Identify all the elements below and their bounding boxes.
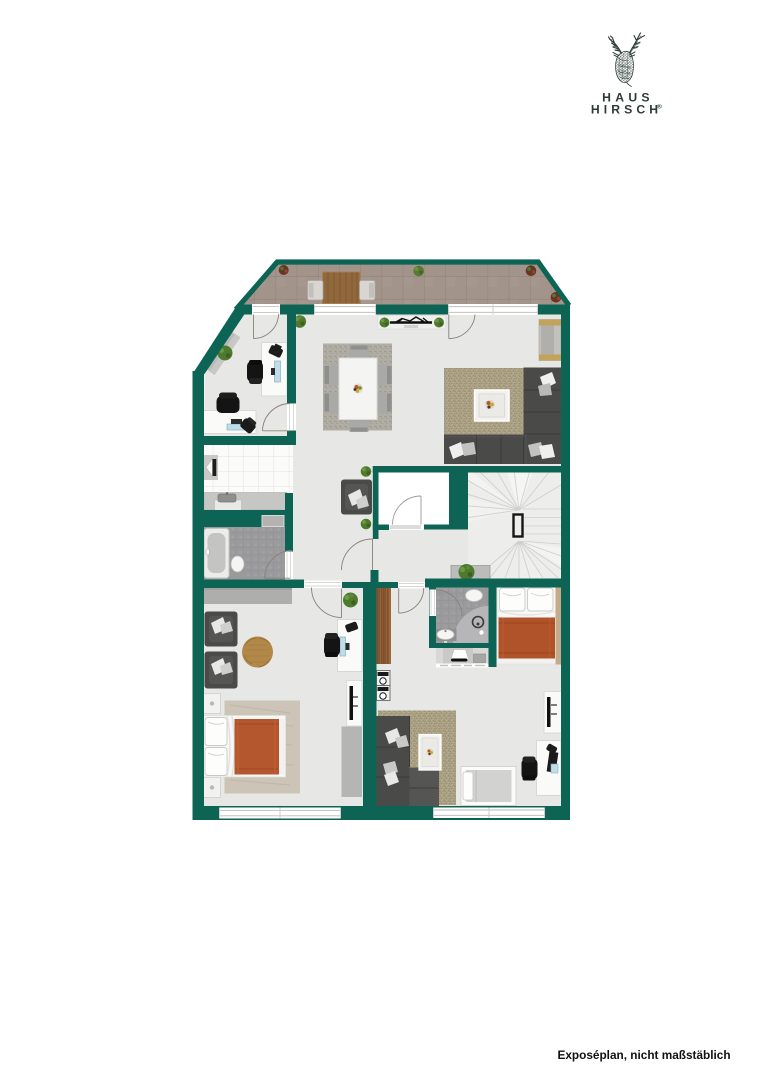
svg-text:Exposéplan, nicht maßstäblich: Exposéplan, nicht maßstäblich bbox=[558, 1048, 731, 1062]
svg-text:HIRSCH: HIRSCH bbox=[591, 103, 662, 117]
svg-text:®: ® bbox=[657, 103, 662, 111]
